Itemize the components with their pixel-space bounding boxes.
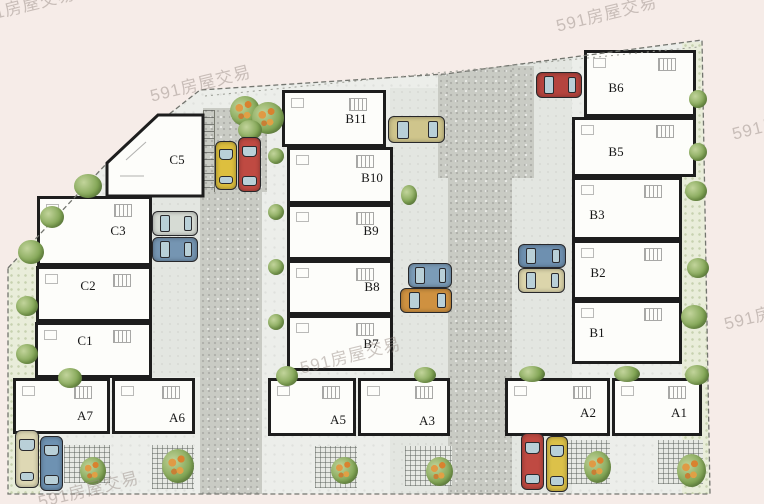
yard-bush-a2 (584, 451, 611, 483)
site-plan: C5 C3 C2 C1 B11 B10 B9 B8 B7 B6 B5 B3 B2… (0, 0, 764, 504)
label-b3: B3 (589, 207, 604, 223)
unit-b5 (572, 117, 696, 177)
road-center (448, 62, 512, 494)
bush-bcol-2 (268, 204, 284, 220)
label-b6: B6 (608, 80, 623, 96)
label-c2: C2 (80, 278, 95, 294)
car-orange-near-b8 (400, 288, 452, 313)
bush-diag-1 (74, 174, 102, 198)
label-c3: C3 (110, 223, 125, 239)
parking-tick-marks (203, 110, 215, 192)
bush-right-6 (685, 365, 709, 385)
watermark-top-center: 591房屋交易 (553, 0, 659, 37)
bush-apron-2 (414, 367, 436, 383)
bush-diag-2 (40, 206, 64, 228)
unit-c2 (36, 266, 152, 322)
watermark-top-left: 591房屋交易 (0, 0, 77, 29)
car-yellow-near-a2 (546, 436, 568, 492)
car-red-left-pad (238, 137, 261, 192)
bush-right-3 (685, 181, 707, 201)
bush-gap-c1-a7 (58, 368, 82, 388)
yard-bush-a1 (677, 454, 706, 487)
bush-b1-a2-gap-1 (519, 366, 545, 382)
bush-b1-a2-gap-2 (614, 366, 640, 382)
bush-left-1 (16, 296, 38, 316)
road-left (200, 190, 262, 494)
unit-b6 (584, 50, 696, 117)
watermark-right-mid: 591房屋交易 (721, 285, 764, 334)
bush-diag-3 (18, 240, 44, 264)
unit-a7 (13, 378, 110, 434)
bush-right-2 (689, 143, 707, 161)
yard-bush-a6 (162, 449, 194, 483)
label-c1: C1 (77, 333, 92, 349)
yard-bush-a3 (426, 457, 453, 486)
label-b5: B5 (608, 144, 623, 160)
unit-b2 (572, 240, 682, 300)
car-red-near-a2 (521, 433, 544, 490)
car-blue-near-b2 (518, 244, 566, 268)
unit-b11 (282, 90, 386, 147)
label-a1: A1 (671, 405, 687, 421)
label-a5: A5 (330, 412, 346, 428)
label-b9: B9 (363, 223, 378, 239)
bush-bcol-3 (268, 259, 284, 275)
label-a6: A6 (169, 410, 185, 426)
car-tan-near-b11 (388, 116, 445, 143)
label-b10: B10 (361, 170, 383, 186)
car-cream-near-b2 (518, 268, 565, 293)
label-b11: B11 (345, 111, 366, 127)
bush-apron-1 (401, 185, 417, 205)
bush-right-1 (689, 90, 707, 108)
bush-right-4 (687, 258, 709, 278)
label-b1: B1 (589, 325, 604, 341)
watermark-right-upper: 591房屋交易 (729, 95, 764, 144)
label-b2: B2 (590, 265, 605, 281)
car-yellow-left-pad (215, 141, 237, 190)
label-a7: A7 (77, 408, 93, 424)
bush-left-2 (16, 344, 38, 364)
bush-bcol-4 (268, 314, 284, 330)
unit-a3 (358, 378, 450, 436)
bush-right-5 (681, 305, 707, 329)
unit-a1 (612, 378, 702, 436)
yard-bush-a5 (331, 457, 358, 484)
unit-c1 (35, 322, 152, 378)
label-c5: C5 (169, 152, 184, 168)
label-a3: A3 (419, 413, 435, 429)
car-silver-near-c3 (152, 211, 198, 236)
label-b8: B8 (364, 279, 379, 295)
bush-bcol-5 (276, 366, 298, 386)
car-blue-near-c3 (152, 237, 198, 262)
car-red-top-right (536, 72, 582, 98)
label-a2: A2 (580, 405, 596, 421)
car-cream-near-a7 (15, 430, 39, 488)
car-blue-near-b8 (408, 263, 452, 288)
bush-bcol-1 (268, 148, 284, 164)
